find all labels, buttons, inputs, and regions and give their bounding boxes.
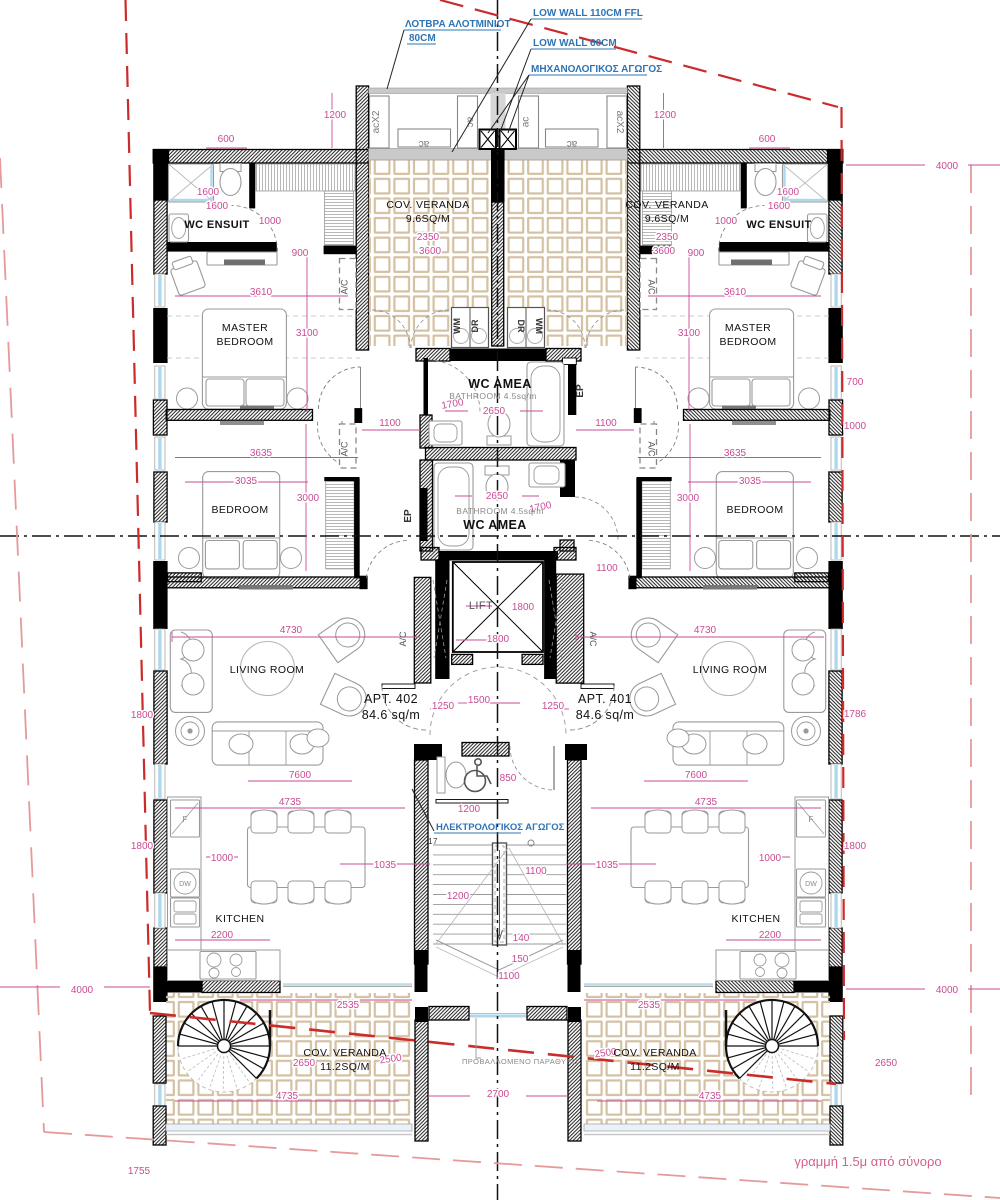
svg-text:3100: 3100 xyxy=(296,328,319,339)
svg-text:2200: 2200 xyxy=(211,930,234,941)
svg-text:1035: 1035 xyxy=(374,860,397,871)
svg-text:BEDROOM: BEDROOM xyxy=(719,336,776,348)
svg-text:APT. 402: APT. 402 xyxy=(364,692,418,706)
svg-text:3100: 3100 xyxy=(678,328,701,339)
svg-text:3635: 3635 xyxy=(250,448,273,459)
svg-text:600: 600 xyxy=(759,134,776,145)
svg-text:1035: 1035 xyxy=(596,860,619,871)
svg-text:1250: 1250 xyxy=(542,701,565,712)
svg-text:900: 900 xyxy=(688,248,705,259)
svg-text:84.6 sq/m: 84.6 sq/m xyxy=(362,708,421,722)
svg-text:2650: 2650 xyxy=(875,1058,898,1069)
svg-text:3635: 3635 xyxy=(724,448,747,459)
svg-text:3000: 3000 xyxy=(297,493,320,504)
svg-text:7600: 7600 xyxy=(685,770,708,781)
svg-text:A/C: A/C xyxy=(647,279,657,295)
svg-text:2350: 2350 xyxy=(656,232,679,243)
svg-text:1100: 1100 xyxy=(498,971,520,982)
svg-text:9.6SQ/M: 9.6SQ/M xyxy=(406,213,450,225)
svg-text:2700: 2700 xyxy=(487,1089,510,1100)
svg-text:A/C: A/C xyxy=(340,441,350,457)
svg-text:WM: WM xyxy=(534,318,544,334)
svg-text:1800: 1800 xyxy=(131,710,154,721)
svg-text:1000: 1000 xyxy=(844,421,867,432)
svg-text:A/C: A/C xyxy=(340,279,350,295)
svg-text:EP: EP xyxy=(575,384,586,398)
svg-text:1600: 1600 xyxy=(768,201,791,212)
svg-text:140: 140 xyxy=(513,933,530,944)
svg-text:COV. VERANDA: COV. VERANDA xyxy=(613,1047,696,1059)
svg-text:4735: 4735 xyxy=(276,1091,299,1102)
svg-text:2535: 2535 xyxy=(638,1000,661,1011)
svg-text:150: 150 xyxy=(512,954,529,965)
svg-text:ac: ac xyxy=(419,138,430,149)
svg-text:BEDROOM: BEDROOM xyxy=(216,336,273,348)
svg-text:2535: 2535 xyxy=(337,1000,360,1011)
svg-text:3000: 3000 xyxy=(677,493,700,504)
svg-text:γραμμή 1.5μ από σύνορο: γραμμή 1.5μ από σύνορο xyxy=(794,1154,941,1169)
svg-text:3600: 3600 xyxy=(419,246,442,257)
svg-text:84.6 sq/m: 84.6 sq/m xyxy=(576,708,635,722)
svg-text:1800: 1800 xyxy=(512,602,535,613)
svg-text:4000: 4000 xyxy=(936,985,959,996)
svg-text:WM: WM xyxy=(452,318,462,334)
svg-text:acX2: acX2 xyxy=(371,110,382,133)
svg-text:2650: 2650 xyxy=(486,491,509,502)
svg-text:WC ENSUIT: WC ENSUIT xyxy=(746,219,811,231)
svg-text:KITCHEN: KITCHEN xyxy=(732,913,781,925)
svg-text:4730: 4730 xyxy=(280,625,303,636)
svg-text:DW: DW xyxy=(179,881,191,888)
svg-text:4000: 4000 xyxy=(71,985,94,996)
svg-text:1000: 1000 xyxy=(211,853,234,864)
svg-text:DR: DR xyxy=(470,319,480,332)
svg-text:ΗΛΕΚΤΡΟΛΟΓΙΚΟΣ ΑΓΩΓΟΣ: ΗΛΕΚΤΡΟΛΟΓΙΚΟΣ ΑΓΩΓΟΣ xyxy=(436,822,565,833)
svg-text:DW: DW xyxy=(805,881,817,888)
svg-text:1000: 1000 xyxy=(759,853,782,864)
svg-text:700: 700 xyxy=(847,377,864,388)
svg-text:3035: 3035 xyxy=(235,476,258,487)
svg-text:600: 600 xyxy=(218,134,235,145)
svg-text:COV. VERANDA: COV. VERANDA xyxy=(625,199,708,211)
svg-text:2650: 2650 xyxy=(483,406,506,417)
svg-text:1100: 1100 xyxy=(596,563,618,574)
svg-text:2650: 2650 xyxy=(293,1058,316,1069)
svg-text:4735: 4735 xyxy=(695,797,718,808)
svg-text:BEDROOM: BEDROOM xyxy=(726,504,783,516)
svg-text:2350: 2350 xyxy=(417,232,440,243)
svg-text:1100: 1100 xyxy=(379,418,401,429)
svg-text:ΜΗΧΑΝΟΛΟΓΙΚΟΣ ΑΓΩΓΟΣ: ΜΗΧΑΝΟΛΟΓΙΚΟΣ ΑΓΩΓΟΣ xyxy=(531,64,662,75)
svg-text:1000: 1000 xyxy=(715,216,738,227)
svg-text:80CM: 80CM xyxy=(409,33,436,44)
svg-text:DR: DR xyxy=(516,320,526,333)
svg-text:F: F xyxy=(809,815,814,824)
svg-text:A/C: A/C xyxy=(647,441,657,457)
svg-text:1755: 1755 xyxy=(128,1166,151,1177)
svg-text:7600: 7600 xyxy=(289,770,312,781)
svg-text:850: 850 xyxy=(500,773,517,784)
svg-text:MASTER: MASTER xyxy=(725,322,771,334)
svg-text:4730: 4730 xyxy=(694,625,717,636)
svg-text:1600: 1600 xyxy=(206,201,229,212)
svg-text:17: 17 xyxy=(428,837,438,846)
svg-text:1800: 1800 xyxy=(844,841,867,852)
svg-text:EP: EP xyxy=(403,509,414,523)
svg-text:F: F xyxy=(183,815,188,824)
svg-text:1100: 1100 xyxy=(525,866,547,877)
svg-text:ac: ac xyxy=(521,117,532,128)
svg-text:1200: 1200 xyxy=(458,804,481,815)
svg-text:1500: 1500 xyxy=(468,695,491,706)
svg-text:LIVING ROOM: LIVING ROOM xyxy=(693,664,767,676)
svg-text:acX2: acX2 xyxy=(614,111,625,134)
svg-text:COV. VERANDA: COV. VERANDA xyxy=(303,1047,386,1059)
svg-text:4000: 4000 xyxy=(936,161,959,172)
svg-text:ΛΟΤΒΡΑ ΑΛΟΤΜΙΝΙΟΤ: ΛΟΤΒΡΑ ΑΛΟΤΜΙΝΙΟΤ xyxy=(405,19,511,30)
svg-text:COV. VERANDA: COV. VERANDA xyxy=(386,199,469,211)
svg-text:A/C: A/C xyxy=(588,631,598,647)
svg-text:1800: 1800 xyxy=(487,634,510,645)
svg-text:1200: 1200 xyxy=(324,110,347,121)
svg-text:3610: 3610 xyxy=(724,287,747,298)
svg-text:1250: 1250 xyxy=(432,701,455,712)
svg-text:4735: 4735 xyxy=(279,797,302,808)
svg-text:1100: 1100 xyxy=(595,418,617,429)
svg-text:BATHROOM 4.5sq/m: BATHROOM 4.5sq/m xyxy=(449,391,536,401)
svg-text:LOW WALL 110CM FFL: LOW WALL 110CM FFL xyxy=(533,8,643,19)
svg-text:WC AMEA: WC AMEA xyxy=(463,518,526,532)
svg-text:1786: 1786 xyxy=(844,709,867,720)
svg-text:BATHROOM 4.5sq/m: BATHROOM 4.5sq/m xyxy=(456,506,543,516)
svg-text:1800: 1800 xyxy=(131,841,154,852)
svg-text:11.2SQ/M: 11.2SQ/M xyxy=(630,1061,680,1073)
svg-text:3600: 3600 xyxy=(653,246,676,257)
svg-text:KITCHEN: KITCHEN xyxy=(216,913,265,925)
svg-text:1600: 1600 xyxy=(197,187,220,198)
svg-text:9.6SQ/M: 9.6SQ/M xyxy=(645,213,689,225)
svg-text:WC AMEA: WC AMEA xyxy=(468,377,531,391)
svg-text:ac: ac xyxy=(567,138,578,149)
svg-text:BEDROOM: BEDROOM xyxy=(211,504,268,516)
svg-text:LIFT: LIFT xyxy=(469,600,493,612)
svg-text:APT. 401: APT. 401 xyxy=(578,692,632,706)
svg-text:MASTER: MASTER xyxy=(222,322,268,334)
svg-text:WC ENSUIT: WC ENSUIT xyxy=(184,219,249,231)
svg-text:A/C: A/C xyxy=(398,631,408,647)
svg-text:900: 900 xyxy=(292,248,309,259)
svg-text:LIVING ROOM: LIVING ROOM xyxy=(230,664,304,676)
svg-text:1200: 1200 xyxy=(654,110,677,121)
svg-text:2200: 2200 xyxy=(759,930,782,941)
svg-text:1000: 1000 xyxy=(259,216,282,227)
svg-text:4735: 4735 xyxy=(699,1091,722,1102)
svg-text:11.2SQ/M: 11.2SQ/M xyxy=(320,1061,370,1073)
svg-text:1600: 1600 xyxy=(777,187,800,198)
svg-text:3035: 3035 xyxy=(739,476,762,487)
svg-text:3610: 3610 xyxy=(250,287,273,298)
svg-text:1200: 1200 xyxy=(447,891,470,902)
svg-text:LOW WALL 60CM: LOW WALL 60CM xyxy=(533,38,617,49)
